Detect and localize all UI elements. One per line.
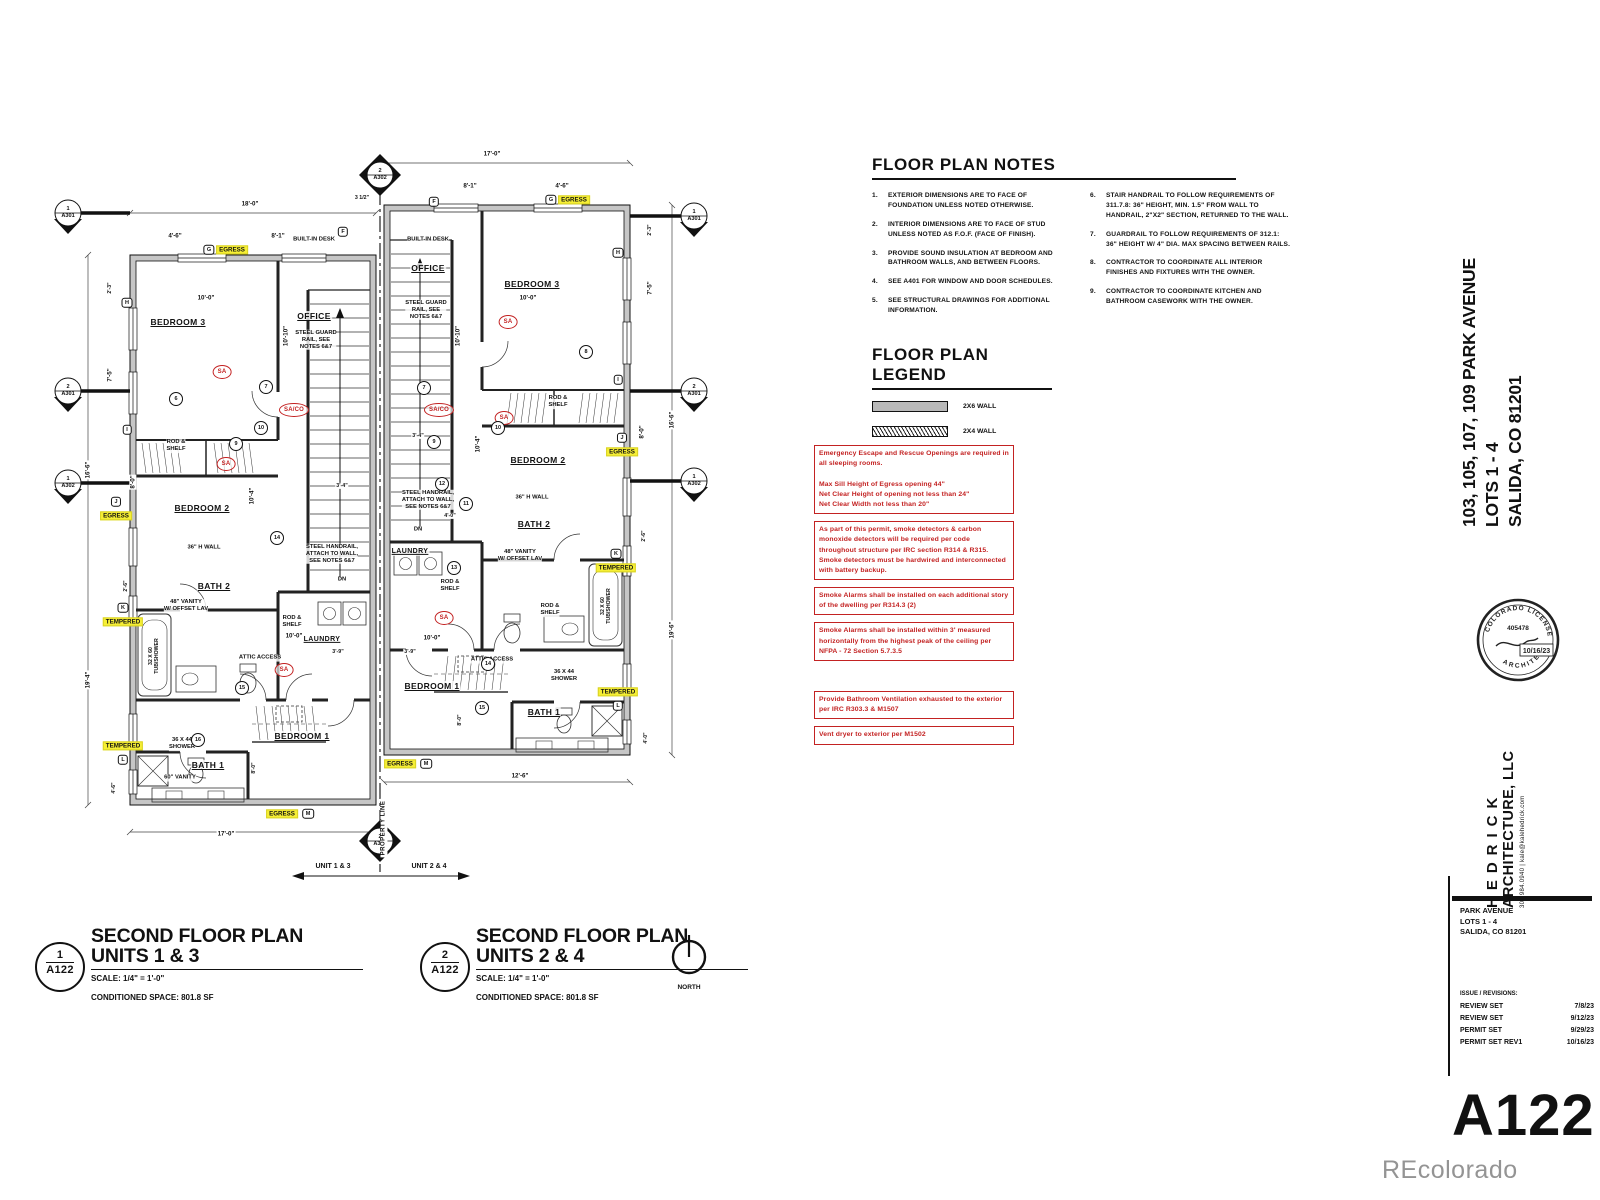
dimension-label: 10'-0" <box>519 294 538 301</box>
project-line: 103, 105, 107, 109 PARK AVENUE <box>1458 197 1481 527</box>
note-item: 7.GUARDRAIL TO FOLLOW REQUIREMENTS OF 31… <box>1090 230 1292 250</box>
plan-annotation: 36 X 44 SHOWER <box>551 669 577 683</box>
firm-name-1: HEDRICK <box>1484 696 1501 908</box>
smoke-alarm-marker: SA <box>435 611 454 625</box>
door-tag: 13 <box>447 561 461 575</box>
legend-row-2x6: 2X6 WALL <box>872 401 1102 412</box>
plan-annotation: ROD & SHELF <box>166 439 185 453</box>
smoke-alarm-marker: SA/CO <box>279 403 309 417</box>
floor-plan-legend: FLOOR PLAN LEGEND 2X6 WALL 2X4 WALL <box>872 345 1102 451</box>
dimension-label: 19'-6" <box>668 621 675 640</box>
plan-annotation: BUILT-IN DESK <box>293 237 335 244</box>
callout-number: 2 <box>431 949 460 963</box>
window-tag: F <box>338 227 348 237</box>
north-label: NORTH <box>660 984 718 991</box>
issues-table: ISSUE / REVISIONS: REVIEW SET7/8/23REVIE… <box>1460 991 1594 1051</box>
wall-2x4-swatch <box>872 426 948 437</box>
window-tag: G <box>545 195 556 205</box>
door-tag: 9 <box>229 437 243 451</box>
note-text: STAIR HANDRAIL TO FOLLOW REQUIREMENTS OF… <box>1106 191 1292 221</box>
issue-date: 9/12/23 <box>1571 1015 1594 1022</box>
plan-annotation: DN <box>414 527 422 534</box>
north-arrow-icon <box>667 933 711 977</box>
highlight-label: EGRESS <box>216 245 248 254</box>
issue-date: 9/29/23 <box>1571 1027 1594 1034</box>
window-tag: K <box>118 603 129 613</box>
dimension-label: 10'-4" <box>474 435 481 454</box>
window-tag: H <box>122 298 133 308</box>
note-number: 7. <box>1090 230 1106 250</box>
plan-annotation: ROD & SHELF <box>540 603 559 617</box>
plan-annotation: DN <box>338 577 346 584</box>
plan-annotation: 36" H WALL <box>187 545 220 552</box>
highlight-label: EGRESS <box>384 759 416 768</box>
section-marker-label: 1 A302 <box>61 476 74 490</box>
watermark: REcolorado <box>1382 1156 1518 1185</box>
highlight-label: TEMPERED <box>598 687 638 696</box>
code-note-box: Emergency Escape and Rescue Openings are… <box>814 445 1014 514</box>
dimension-label: 10'-4" <box>248 487 255 506</box>
note-number: 4. <box>872 277 888 287</box>
project-block-line: PARK AVENUE <box>1460 906 1526 917</box>
door-tag: 10 <box>491 421 505 435</box>
dimension-label: 32 X 60 TUB/SHOWER <box>600 587 612 624</box>
window-tag: F <box>429 197 439 207</box>
smoke-alarm-marker: SA <box>275 663 294 677</box>
dimension-label: 3'-4" <box>411 433 424 439</box>
section-marker-label: 1 A301 <box>687 209 700 223</box>
dimension-label: 8'-0" <box>638 424 645 439</box>
firm-contact: 303.984.0940 | kale@kalehedrick.com <box>1520 696 1526 908</box>
conditioned-space: CONDITIONED SPACE: 801.8 SF <box>91 993 375 1002</box>
room-label: BATH 2 <box>197 581 231 591</box>
plan-annotation: ROD & SHELF <box>440 579 459 593</box>
dimension-label: 4'-0" <box>443 513 456 519</box>
dimension-label: 4'-0" <box>643 731 649 744</box>
note-number: 6. <box>1090 191 1106 221</box>
project-block: PARK AVENUE LOTS 1 - 4 SALIDA, CO 81201 <box>1460 906 1526 938</box>
dimension-label: 10'-10" <box>454 325 461 347</box>
issue-name: REVIEW SET <box>1460 1003 1503 1010</box>
window-tag: I <box>614 375 623 385</box>
plan-annotation: 48" VANITY W/ OFFSET LAV <box>498 549 542 563</box>
issues-title: ISSUE / REVISIONS: <box>1460 991 1594 997</box>
drawing-sheet: BEDROOM 3OFFICEBEDROOM 2BATH 2LAUNDRYBED… <box>0 0 1600 1200</box>
dimension-label: 7'-5" <box>106 367 113 382</box>
dimension-label: 3'-9" <box>403 649 416 655</box>
sheet-number: A122 <box>1452 1082 1595 1149</box>
plan-annotation: ROD & SHELF <box>548 395 567 409</box>
room-label: BATH 1 <box>191 760 225 770</box>
door-tag: 15 <box>475 701 489 715</box>
code-note-box: Provide Bathroom Ventilation exhausted t… <box>814 691 1014 719</box>
dimension-label: 10'-0" <box>285 632 304 639</box>
code-note-box: Smoke Alarms shall be installed on each … <box>814 587 1014 615</box>
dimension-label: 8'-1" <box>270 232 285 239</box>
note-number: 8. <box>1090 258 1106 278</box>
floor-plan-notes: FLOOR PLAN NOTES 1.EXTERIOR DIMENSIONS A… <box>872 155 1304 325</box>
note-item: 8.CONTRACTOR TO COORDINATE ALL INTERIOR … <box>1090 258 1292 278</box>
dimension-label: 8'-0" <box>457 713 463 726</box>
plan-annotation: STEEL HANDRAIL, ATTACH TO WALL, SEE NOTE… <box>306 544 358 564</box>
room-label: LAUNDRY <box>303 636 342 644</box>
highlight-label: TEMPERED <box>103 741 143 750</box>
plan-annotation: 48" VANITY W/ OFFSET LAV <box>164 599 208 613</box>
dimension-label: 17'-0" <box>483 150 502 157</box>
section-marker-label: 1 A302 <box>687 474 700 488</box>
door-tag: 8 <box>579 345 593 359</box>
section-marker-label: 2 A301 <box>687 384 700 398</box>
firm-name-rotated: HEDRICK ARCHITECTURE, LLC 303.984.0940 |… <box>1484 696 1526 908</box>
window-tag: M <box>420 759 432 769</box>
door-tag: 16 <box>191 733 205 747</box>
room-label: BATH 1 <box>527 707 561 717</box>
dimension-label: 12'-6" <box>511 772 530 779</box>
issue-row: REVIEW SET9/12/23 <box>1460 1015 1594 1022</box>
plan-annotation: STEEL GUARD RAIL, SEE NOTES 6&7 <box>295 330 336 350</box>
door-tag: 11 <box>459 497 473 511</box>
note-number: 5. <box>872 296 888 316</box>
project-address-rotated: 103, 105, 107, 109 PARK AVENUE LOTS 1 - … <box>1458 197 1526 527</box>
dimension-label: 4'-6" <box>111 781 117 794</box>
note-item: 1.EXTERIOR DIMENSIONS ARE TO FACE OF FOU… <box>872 191 1074 211</box>
plan-annotation: STEEL HANDRAIL, ATTACH TO WALL, SEE NOTE… <box>402 490 454 510</box>
issue-date: 10/16/23 <box>1567 1039 1594 1046</box>
plan-annotation: 60" VANITY <box>164 775 196 782</box>
smoke-alarm-marker: SA/CO <box>424 403 454 417</box>
dimension-label: 8'-1" <box>462 182 477 189</box>
room-label: BEDROOM 1 <box>273 731 330 741</box>
note-item: 6.STAIR HANDRAIL TO FOLLOW REQUIREMENTS … <box>1090 191 1292 221</box>
dimension-label: 16'-6" <box>668 411 675 430</box>
code-note-box: As part of this permit, smoke detectors … <box>814 521 1014 580</box>
window-tag: L <box>118 755 128 765</box>
svg-text:405478: 405478 <box>1507 625 1529 632</box>
room-label: BATH 2 <box>517 519 551 529</box>
note-text: SEE A401 FOR WINDOW AND DOOR SCHEDULES. <box>888 277 1053 287</box>
window-tag: M <box>302 809 314 819</box>
highlight-label: TEMPERED <box>103 617 143 626</box>
plan-scale: SCALE: 1/4" = 1'-0" <box>91 974 375 983</box>
window-tag: G <box>203 245 214 255</box>
note-text: CONTRACTOR TO COORDINATE KITCHEN AND BAT… <box>1106 287 1292 307</box>
dimension-label: 3 1/2" <box>354 195 370 201</box>
dimension-label: 2'-3" <box>647 223 653 236</box>
plan-callout-1: 1 A122 <box>35 942 85 992</box>
room-label: BEDROOM 2 <box>173 503 230 513</box>
project-line: SALIDA, CO 81201 <box>1504 197 1527 527</box>
note-item: 2.INTERIOR DIMENSIONS ARE TO FACE OF STU… <box>872 220 1074 240</box>
unit-label: UNIT 1 & 3 <box>315 863 350 871</box>
room-label: OFFICE <box>296 311 332 321</box>
dimension-label: 8'-0" <box>129 474 136 489</box>
plan-title-1: 1 A122 SECOND FLOOR PLAN UNITS 1 & 3 SCA… <box>35 926 375 1002</box>
window-tag: L <box>613 701 623 711</box>
code-note-box: Vent dryer to exterior per M1502 <box>814 726 1014 744</box>
issue-row: PERMIT SET9/29/23 <box>1460 1027 1594 1034</box>
plan-callout-2: 2 A122 <box>420 942 470 992</box>
floor-plans-area: BEDROOM 3OFFICEBEDROOM 2BATH 2LAUNDRYBED… <box>30 140 740 910</box>
highlight-label: EGRESS <box>100 511 132 520</box>
dimension-label: 10'-0" <box>423 634 442 641</box>
door-tag: 15 <box>235 681 249 695</box>
note-text: EXTERIOR DIMENSIONS ARE TO FACE OF FOUND… <box>888 191 1074 211</box>
legend-label: 2X6 WALL <box>963 403 996 410</box>
window-tag: K <box>611 549 622 559</box>
legend-label: 2X4 WALL <box>963 428 996 435</box>
note-item: 9.CONTRACTOR TO COORDINATE KITCHEN AND B… <box>1090 287 1292 307</box>
firm-name-2: ARCHITECTURE, LLC <box>1501 696 1517 908</box>
room-label: BEDROOM 3 <box>149 317 206 327</box>
smoke-alarm-marker: SA <box>499 315 518 329</box>
door-tag: 9 <box>427 435 441 449</box>
door-tag: 6 <box>169 392 183 406</box>
door-tag: 7 <box>417 381 431 395</box>
highlight-label: EGRESS <box>606 447 638 456</box>
callout-number: 1 <box>46 949 75 963</box>
note-text: GUARDRAIL TO FOLLOW REQUIREMENTS OF 312.… <box>1106 230 1292 250</box>
legend-title: FLOOR PLAN LEGEND <box>872 345 1052 390</box>
dimension-label: 19'-4" <box>84 671 91 690</box>
section-marker-label: 1 A301 <box>61 206 74 220</box>
door-tag: 7 <box>259 380 273 394</box>
wall-2x6-swatch <box>872 401 948 412</box>
dimension-label: 3'-9" <box>331 649 344 655</box>
legend-row-2x4: 2X4 WALL <box>872 426 1102 437</box>
titleblock-divider <box>1448 876 1450 1076</box>
svg-text:10/16/23: 10/16/23 <box>1523 648 1550 655</box>
door-tag: 14 <box>481 657 495 671</box>
note-item: 3.PROVIDE SOUND INSULATION AT BEDROOM AN… <box>872 249 1074 269</box>
dimension-label: 16'-6" <box>84 461 91 480</box>
property-line-label: PROPERTY LINE <box>380 799 387 858</box>
window-tag: I <box>123 425 132 435</box>
note-number: 1. <box>872 191 888 211</box>
code-note-box: Smoke Alarms shall be installed within 3… <box>814 622 1014 661</box>
note-number: 9. <box>1090 287 1106 307</box>
dimension-label: 18'-0" <box>241 200 260 207</box>
plan-annotation: BUILT-IN DESK <box>407 237 449 244</box>
room-label: BEDROOM 1 <box>403 681 460 691</box>
architect-seal: COLORADO LICENSED ARCHITECT 405478 10/16… <box>1474 596 1562 684</box>
north-arrow: NORTH <box>660 933 718 991</box>
dimension-label: 8'-0" <box>251 761 257 774</box>
plan-labels-layer: BEDROOM 3OFFICEBEDROOM 2BATH 2LAUNDRYBED… <box>30 140 740 910</box>
project-line: LOTS 1 - 4 <box>1481 197 1504 527</box>
notes-title: FLOOR PLAN NOTES <box>872 155 1236 180</box>
dimension-label: 7'-5" <box>646 280 653 295</box>
note-item: 4.SEE A401 FOR WINDOW AND DOOR SCHEDULES… <box>872 277 1074 287</box>
highlight-label: EGRESS <box>558 195 590 204</box>
project-block-line: LOTS 1 - 4 <box>1460 917 1526 928</box>
issue-date: 7/8/23 <box>1575 1003 1594 1010</box>
window-tag: J <box>617 433 627 443</box>
architect-seal-icon: COLORADO LICENSED ARCHITECT 405478 10/16… <box>1474 596 1562 684</box>
note-number: 3. <box>872 249 888 269</box>
section-marker-label: 2 A302 <box>373 168 386 182</box>
room-label: LAUNDRY <box>391 548 430 556</box>
highlight-label: EGRESS <box>266 809 298 818</box>
plan-title-line1: SECOND FLOOR PLAN <box>91 926 375 946</box>
note-text: CONTRACTOR TO COORDINATE ALL INTERIOR FI… <box>1106 258 1292 278</box>
note-number: 2. <box>872 220 888 240</box>
title-rule <box>91 969 363 970</box>
room-label: BEDROOM 3 <box>503 279 560 289</box>
dimension-label: 3'-4" <box>335 483 348 489</box>
room-label: BEDROOM 2 <box>509 455 566 465</box>
dimension-label: 2'-6" <box>123 579 129 592</box>
plan-annotation: STEEL GUARD RAIL, SEE NOTES 6&7 <box>405 300 446 320</box>
note-text: INTERIOR DIMENSIONS ARE TO FACE OF STUD … <box>888 220 1074 240</box>
plan-annotation: 36" H WALL <box>515 495 548 502</box>
plan-title-line2: UNITS 1 & 3 <box>91 946 375 966</box>
notes-column-2: 6.STAIR HANDRAIL TO FOLLOW REQUIREMENTS … <box>1090 191 1292 325</box>
issue-name: PERMIT SET <box>1460 1027 1502 1034</box>
window-tag: J <box>111 497 121 507</box>
titleblock-bar <box>1452 896 1592 901</box>
smoke-alarm-marker: SA <box>213 365 232 379</box>
issue-row: PERMIT SET REV110/16/23 <box>1460 1039 1594 1046</box>
dimension-label: 17'-0" <box>217 830 236 837</box>
dimension-label: 32 X 60 TUB/SHOWER <box>148 637 160 674</box>
callout-sheet: A122 <box>422 964 468 976</box>
project-block-line: SALIDA, CO 81201 <box>1460 927 1526 938</box>
dimension-label: 10'-10" <box>282 325 289 347</box>
issue-row: REVIEW SET7/8/23 <box>1460 1003 1594 1010</box>
door-tag: 10 <box>254 421 268 435</box>
conditioned-space: CONDITIONED SPACE: 801.8 SF <box>476 993 760 1002</box>
note-text: PROVIDE SOUND INSULATION AT BEDROOM AND … <box>888 249 1074 269</box>
issue-name: PERMIT SET REV1 <box>1460 1039 1522 1046</box>
notes-column-1: 1.EXTERIOR DIMENSIONS ARE TO FACE OF FOU… <box>872 191 1074 325</box>
callout-sheet: A122 <box>37 964 83 976</box>
room-label: OFFICE <box>410 263 446 273</box>
window-tag: H <box>613 248 624 258</box>
section-marker-label: 2 A301 <box>61 384 74 398</box>
note-item: 5.SEE STRUCTURAL DRAWINGS FOR ADDITIONAL… <box>872 296 1074 316</box>
note-text: SEE STRUCTURAL DRAWINGS FOR ADDITIONAL I… <box>888 296 1074 316</box>
dimension-label: 2'-3" <box>107 281 113 294</box>
door-tag: 12 <box>435 477 449 491</box>
smoke-alarm-marker: SA <box>217 457 236 471</box>
dimension-label: 2'-6" <box>641 529 647 542</box>
dimension-label: 4'-6" <box>554 182 569 189</box>
dimension-label: 4'-6" <box>167 232 182 239</box>
plan-annotation: ROD & SHELF <box>282 615 301 629</box>
highlight-label: TEMPERED <box>596 563 636 572</box>
dimension-label: 10'-0" <box>197 294 216 301</box>
door-tag: 14 <box>270 531 284 545</box>
code-notes: Emergency Escape and Rescue Openings are… <box>814 445 1014 752</box>
issue-name: REVIEW SET <box>1460 1015 1503 1022</box>
unit-label: UNIT 2 & 4 <box>411 863 446 871</box>
plan-annotation: ATTIC ACCESS <box>239 655 281 662</box>
